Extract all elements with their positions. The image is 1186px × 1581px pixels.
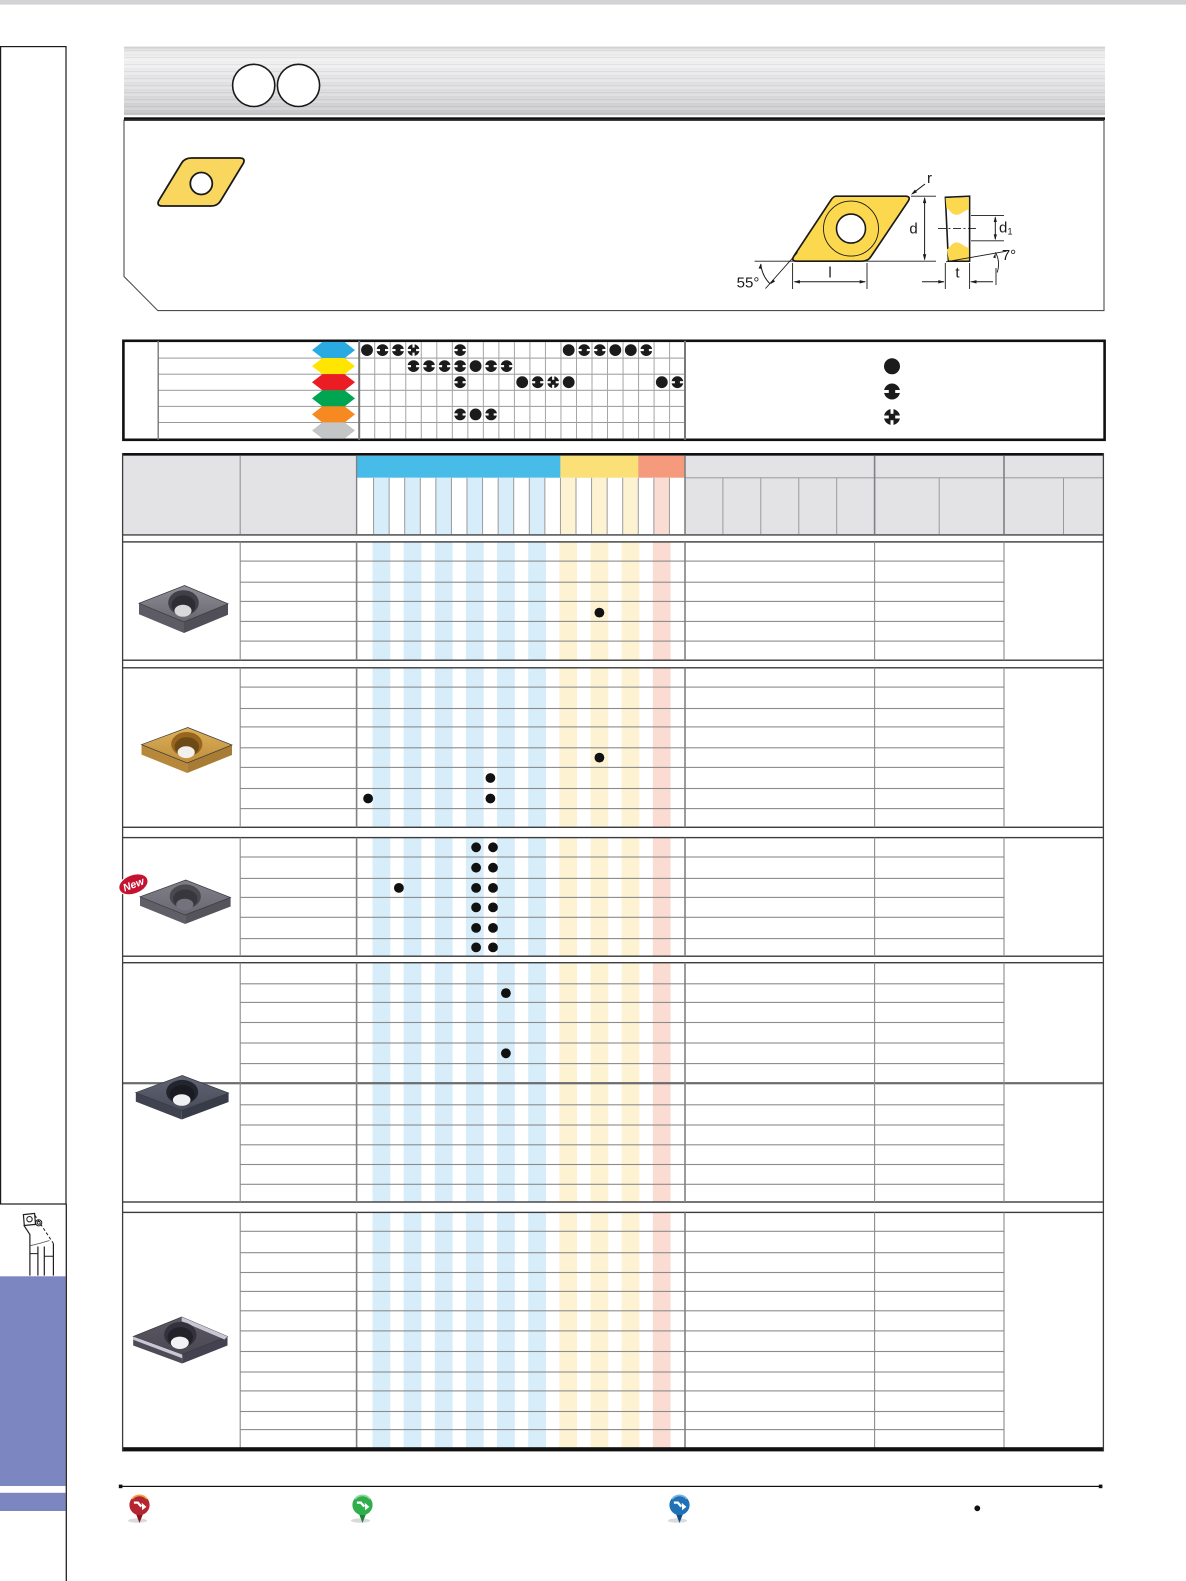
svg-text:55°: 55° [737, 275, 760, 292]
svg-text:r: r [927, 170, 932, 187]
svg-text:l: l [828, 265, 831, 282]
svg-text:d: d [999, 220, 1007, 237]
svg-text:1: 1 [1008, 227, 1013, 237]
svg-text:d: d [909, 221, 917, 238]
svg-text:7°: 7° [1002, 247, 1016, 264]
